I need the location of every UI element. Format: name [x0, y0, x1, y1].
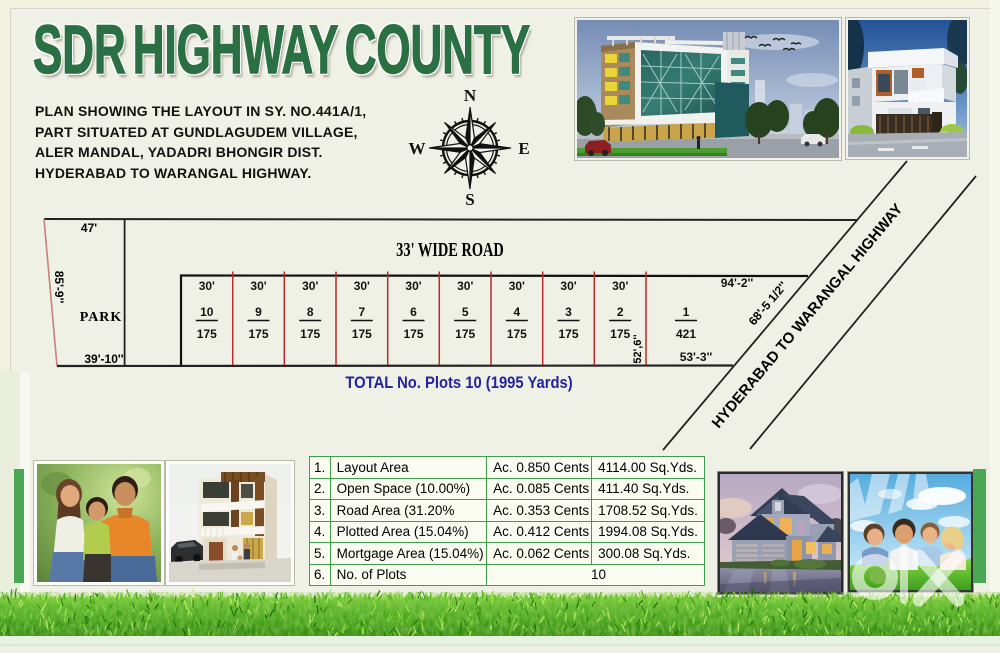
svg-text:N: N	[464, 88, 477, 105]
svg-text:47': 47'	[81, 221, 97, 235]
svg-text:53'-3'': 53'-3''	[680, 350, 713, 364]
svg-text:3: 3	[565, 305, 572, 319]
svg-text:HYDERABAD TO WARANGAL HIGHWAY: HYDERABAD TO WARANGAL HIGHWAY	[709, 201, 907, 432]
svg-text:8: 8	[307, 305, 314, 319]
svg-text:175: 175	[403, 327, 423, 341]
svg-text:30': 30'	[612, 279, 628, 293]
svg-text:30': 30'	[405, 279, 421, 293]
svg-text:175: 175	[507, 327, 527, 341]
svg-text:10: 10	[200, 305, 214, 319]
svg-text:175: 175	[197, 327, 217, 341]
svg-text:175: 175	[248, 327, 268, 341]
svg-text:6: 6	[410, 305, 417, 319]
svg-text:2: 2	[617, 305, 624, 319]
svg-text:30': 30'	[457, 279, 473, 293]
svg-text:9: 9	[255, 305, 262, 319]
svg-text:175: 175	[558, 327, 578, 341]
svg-text:TOTAL No. Plots 10 (1995 Yards: TOTAL No. Plots 10 (1995 Yards)	[345, 374, 572, 392]
svg-text:4: 4	[513, 305, 520, 319]
svg-text:30': 30'	[199, 279, 215, 293]
svg-text:175: 175	[300, 327, 320, 341]
svg-text:1: 1	[683, 305, 690, 319]
svg-text:94'-2'': 94'-2''	[721, 276, 754, 290]
svg-text:PARK: PARK	[80, 310, 123, 325]
svg-text:7: 7	[358, 305, 365, 319]
svg-text:175: 175	[352, 327, 372, 341]
svg-text:175: 175	[610, 327, 630, 341]
svg-text:30': 30'	[509, 279, 525, 293]
svg-text:5: 5	[462, 305, 469, 319]
svg-text:39'-10'': 39'-10''	[84, 352, 123, 366]
svg-text:33' WIDE ROAD: 33' WIDE ROAD	[396, 238, 504, 261]
svg-text:52',6'': 52',6''	[632, 334, 644, 364]
svg-text:30': 30'	[250, 279, 266, 293]
svg-text:421: 421	[676, 327, 696, 341]
svg-text:30': 30'	[302, 279, 318, 293]
svg-text:175: 175	[455, 327, 475, 341]
svg-text:30': 30'	[560, 279, 576, 293]
svg-text:30': 30'	[354, 279, 370, 293]
svg-text:85'-9'': 85'-9''	[52, 271, 66, 304]
